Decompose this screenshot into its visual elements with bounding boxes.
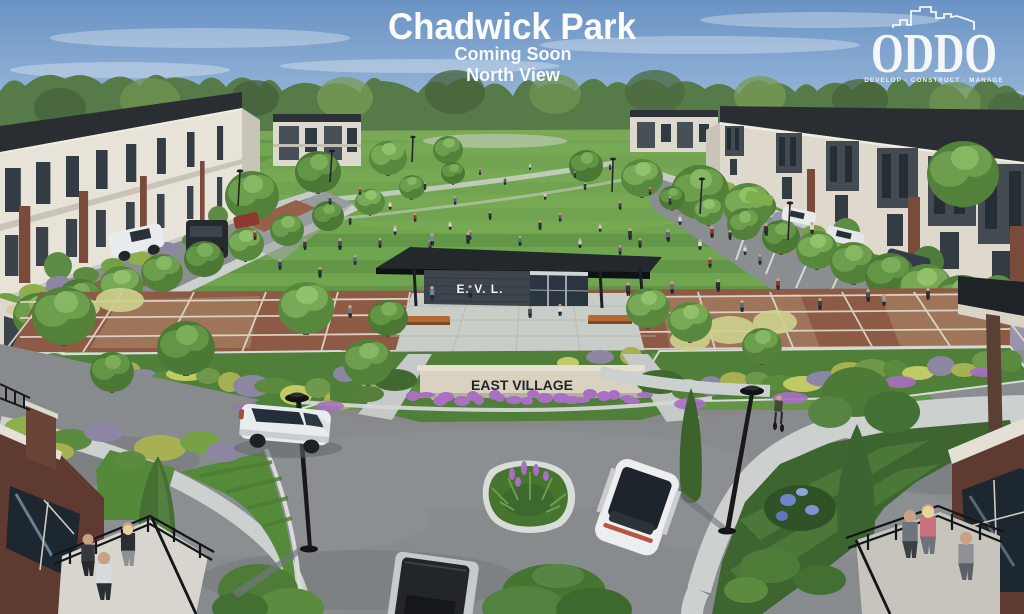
svg-text:DEVELOP · CONSTRUCT · MANAGE: DEVELOP · CONSTRUCT · MANAGE <box>864 77 1003 84</box>
svg-text:E. V. L.: E. V. L. <box>457 282 504 296</box>
svg-text:Chadwick Park: Chadwick Park <box>388 6 636 47</box>
svg-text:Coming Soon: Coming Soon <box>455 44 572 64</box>
svg-text:North View: North View <box>466 65 561 85</box>
svg-text:ODDO: ODDO <box>871 23 997 85</box>
svg-text:EAST VILLAGE: EAST VILLAGE <box>471 377 573 393</box>
